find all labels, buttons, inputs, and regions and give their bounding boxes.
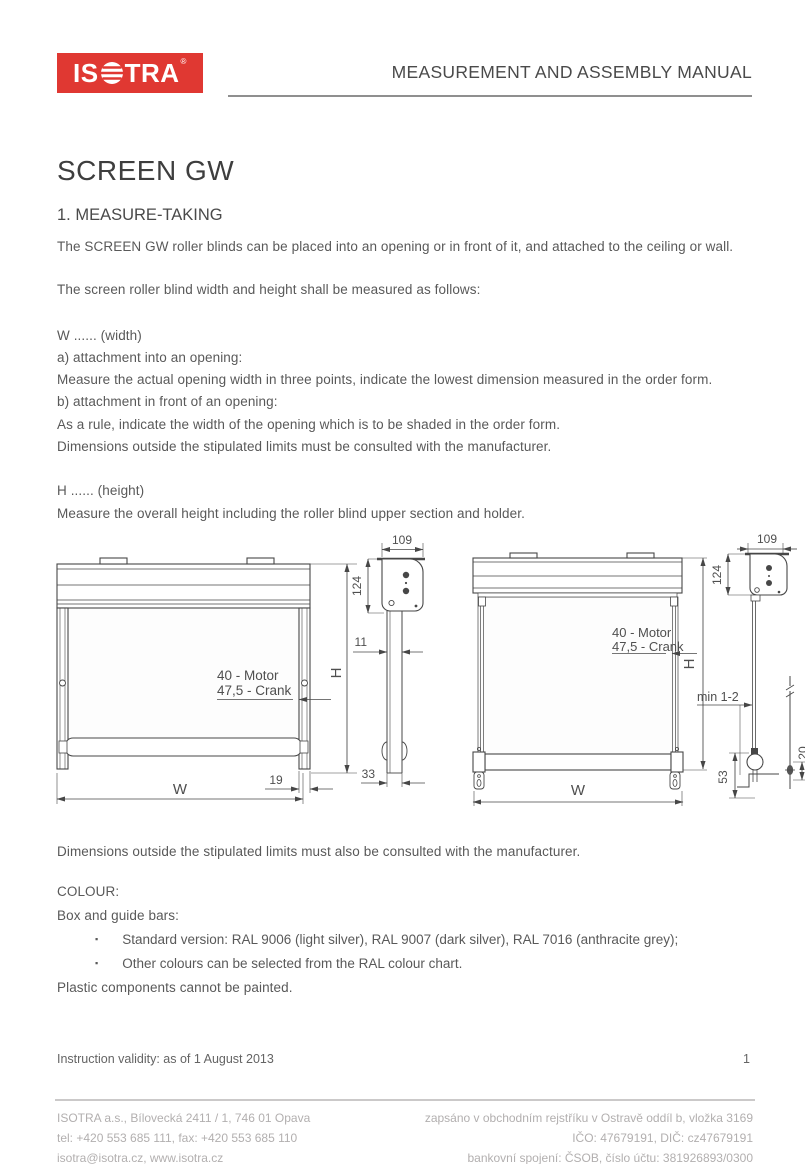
front-view-rail-guided xyxy=(57,558,310,769)
dim-label-min-gap: min 1-2 xyxy=(697,690,739,704)
bottom-weight-profile xyxy=(747,754,763,770)
section-heading: 1. MEASURE-TAKING xyxy=(57,206,223,225)
technical-drawing: 40 - Motor 47,5 - Crank H 19 W xyxy=(45,533,805,813)
width-a-label: a) attachment into an opening: xyxy=(57,350,242,365)
colour-heading: COLOUR: xyxy=(57,884,119,899)
page-title: SCREEN GW xyxy=(57,155,234,187)
dim-label-height-left: H xyxy=(328,668,345,679)
colour-bullet-1-text: Standard version: RAL 9006 (light silver… xyxy=(122,932,678,947)
footer-address: ISOTRA a.s., Bílovecká 2411 / 1, 746 01 … xyxy=(57,1108,310,1128)
dim-label-11: 11 xyxy=(355,635,368,649)
bullet-icon: ▪ xyxy=(95,934,98,944)
bullet-icon: ▪ xyxy=(95,958,98,968)
footer-registration-info: zapsáno v obchodním rejstříku v Ostravě … xyxy=(425,1108,753,1164)
intro-paragraph-1: The SCREEN GW roller blinds can be place… xyxy=(57,239,733,254)
intro-paragraph-2: The screen roller blind width and height… xyxy=(57,282,480,297)
height-text: Measure the overall height including the… xyxy=(57,506,525,521)
dim-label-124-right: 124 xyxy=(710,565,724,585)
manual-title: MEASUREMENT AND ASSEMBLY MANUAL xyxy=(392,62,752,83)
footer-email-web: isotra@isotra.cz, www.isotra.cz xyxy=(57,1148,310,1164)
head-profile xyxy=(382,559,423,611)
logo-text-suffix: TRA xyxy=(125,58,180,89)
bottom-bar xyxy=(485,754,671,770)
validity-note: Instruction validity: as of 1 August 201… xyxy=(57,1052,274,1066)
dim-label-crank-left: 47,5 - Crank xyxy=(217,683,292,698)
footer-divider xyxy=(55,1099,755,1101)
colour-bullet-2-text: Other colours can be selected from the R… xyxy=(122,956,462,971)
bottom-roller xyxy=(65,738,302,756)
isotra-logo: IS TRA ® xyxy=(57,53,203,93)
dim-label-width-left: W xyxy=(173,781,188,798)
dim-label-motor-right: 40 - Motor xyxy=(612,625,672,640)
dim-label-width-right: W xyxy=(571,782,586,799)
document-page: IS TRA ® MEASUREMENT AND ASSEMBLY MANUAL… xyxy=(0,0,808,1164)
footer-registry: zapsáno v obchodním rejstříku v Ostravě … xyxy=(425,1108,753,1128)
side-view-wire-guided xyxy=(737,554,795,789)
screen-fabric xyxy=(478,597,678,754)
screen-fabric-edge xyxy=(753,601,756,754)
logo-globe-icon xyxy=(100,61,124,85)
after-note: Dimensions outside the stipulated limits… xyxy=(57,844,580,859)
front-view-wire-guided xyxy=(473,553,683,789)
width-b-label: b) attachment in front of an opening: xyxy=(57,394,278,409)
dim-label-124-left: 124 xyxy=(350,576,364,596)
floor-bracket xyxy=(737,774,779,787)
dim-label-19: 19 xyxy=(269,773,283,787)
width-heading: W ...... (width) xyxy=(57,328,142,343)
page-number: 1 xyxy=(743,1052,750,1066)
width-note: Dimensions outside the stipulated limits… xyxy=(57,439,551,454)
side-view-rail-guided xyxy=(377,559,425,773)
width-b-text: As a rule, indicate the width of the ope… xyxy=(57,417,560,432)
plastic-note: Plastic components cannot be painted. xyxy=(57,980,293,995)
colour-subheading: Box and guide bars: xyxy=(57,908,179,923)
mounting-clip xyxy=(100,558,127,564)
dim-label-height-right: H xyxy=(681,659,698,670)
mounting-clip xyxy=(247,558,274,564)
footer-bank: bankovní spojení: ČSOB, číslo účtu: 3819… xyxy=(425,1148,753,1164)
colour-bullet-item: ▪Other colours can be selected from the … xyxy=(95,956,462,971)
dim-label-20: 20 xyxy=(796,746,805,760)
registered-trademark-icon: ® xyxy=(181,57,187,66)
dim-label-motor-left: 40 - Motor xyxy=(217,668,279,683)
dim-label-109-left: 109 xyxy=(392,533,412,547)
head-box xyxy=(57,564,310,608)
dim-label-33: 33 xyxy=(362,767,376,781)
dim-label-crank-right: 47,5 - Crank xyxy=(612,639,684,654)
mounting-clip xyxy=(510,553,537,558)
bottom-bar-profile xyxy=(382,742,407,760)
width-a-text: Measure the actual opening width in thre… xyxy=(57,372,712,387)
dim-label-53: 53 xyxy=(716,770,730,784)
height-heading: H ...... (height) xyxy=(57,483,144,498)
header-divider xyxy=(228,95,752,97)
footer-phone: tel: +420 553 685 111, fax: +420 553 685… xyxy=(57,1128,310,1148)
dim-label-109-right: 109 xyxy=(757,533,777,546)
footer-company-info: ISOTRA a.s., Bílovecká 2411 / 1, 746 01 … xyxy=(57,1108,310,1164)
logo-text-prefix: IS xyxy=(73,58,99,89)
colour-bullet-item: ▪Standard version: RAL 9006 (light silve… xyxy=(95,932,678,947)
mounting-clip xyxy=(627,553,654,558)
footer-ico-dic: IČO: 47679191, DIČ: cz47679191 xyxy=(425,1128,753,1148)
